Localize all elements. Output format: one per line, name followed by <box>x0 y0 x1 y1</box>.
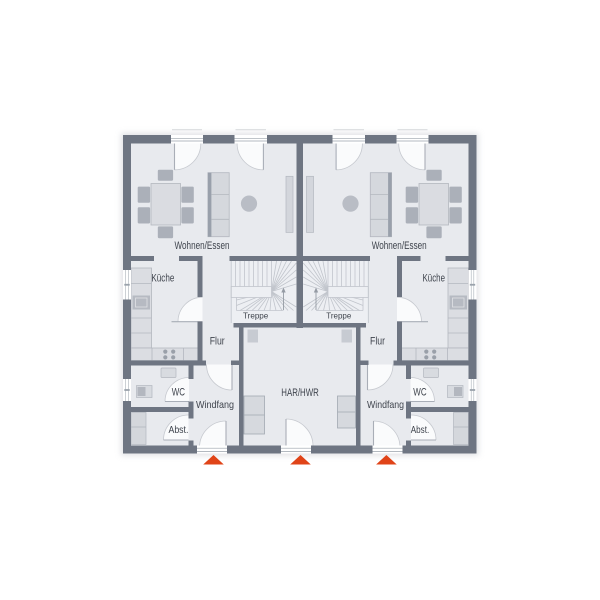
svg-text:Windfang: Windfang <box>196 400 234 411</box>
svg-text:Küche: Küche <box>423 273 446 285</box>
svg-text:Küche: Küche <box>151 273 174 285</box>
svg-text:Flur: Flur <box>370 335 385 347</box>
svg-text:Abst.: Abst. <box>169 425 189 436</box>
svg-text:WC: WC <box>413 386 426 398</box>
svg-text:Treppe: Treppe <box>243 310 269 320</box>
svg-text:Wohnen/Essen: Wohnen/Essen <box>175 240 230 252</box>
svg-text:Treppe: Treppe <box>326 310 351 320</box>
svg-text:Abst.: Abst. <box>411 425 429 436</box>
svg-text:Windfang: Windfang <box>367 400 404 411</box>
svg-text:WC: WC <box>172 386 185 398</box>
svg-text:Flur: Flur <box>210 335 225 347</box>
svg-text:Wohnen/Essen: Wohnen/Essen <box>372 240 427 252</box>
svg-text:HAR/HWR: HAR/HWR <box>281 387 319 399</box>
